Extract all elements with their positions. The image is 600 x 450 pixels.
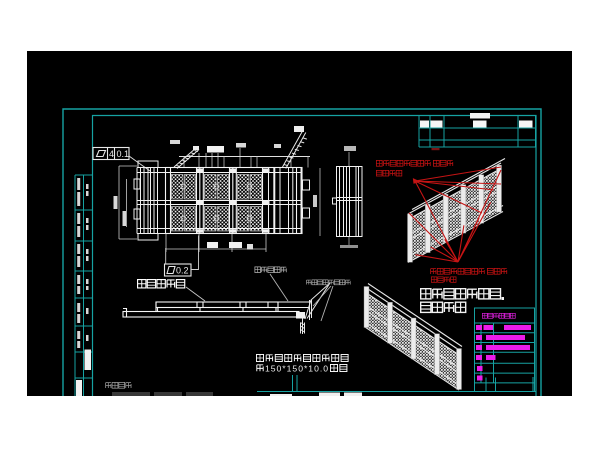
svg-text:0.2: 0.2 bbox=[176, 266, 189, 276]
svg-text:150*150*10.0: 150*150*10.0 bbox=[265, 364, 328, 374]
svg-text:4: 4 bbox=[109, 149, 114, 159]
svg-text:0.1: 0.1 bbox=[117, 149, 130, 159]
